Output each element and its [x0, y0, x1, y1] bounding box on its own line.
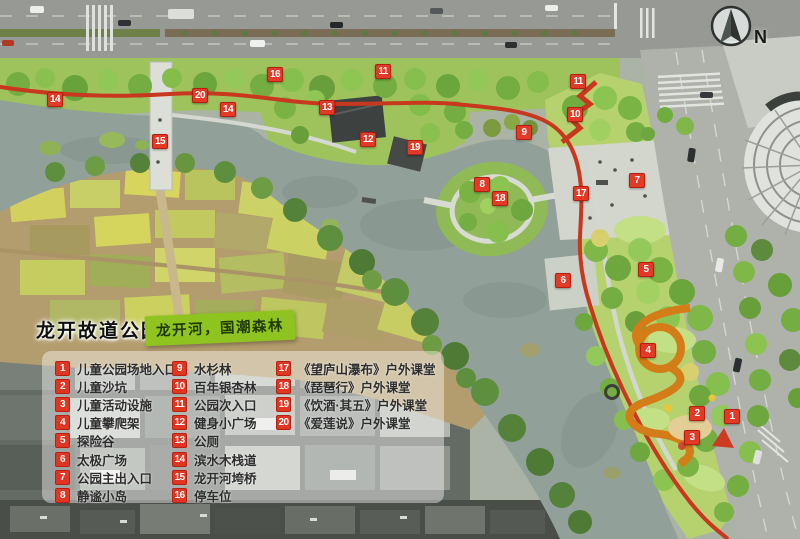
legend-item: 18《琵琶行》户外课堂	[276, 377, 436, 395]
map-marker-4: 4	[640, 343, 656, 358]
map-marker-16: 16	[267, 67, 283, 82]
legend-item: 19《饮酒·其五》户外课堂	[276, 395, 436, 413]
legend-item: 2儿童沙坑	[55, 377, 177, 395]
legend-item-label: 龙开河垮桥	[194, 468, 257, 487]
legend-item-number: 9	[172, 361, 187, 376]
legend-item: 12健身小广场	[172, 414, 257, 432]
map-marker-11: 11	[375, 64, 391, 79]
legend-item: 20《爱莲说》户外课堂	[276, 414, 436, 432]
map-marker-14: 14	[220, 102, 236, 117]
legend-item-number: 18	[276, 379, 291, 394]
legend-item: 8静谧小岛	[55, 486, 177, 504]
legend-item-label: 儿童沙坑	[77, 377, 127, 396]
map-marker-3: 3	[684, 430, 700, 445]
legend-item-label: 健身小广场	[194, 413, 257, 432]
legend-item-label: 公园次入口	[194, 395, 257, 414]
legend-item-label: 探险谷	[77, 431, 115, 450]
park-map-image: 14201415161113121911109818177654213 龙开故道…	[0, 0, 800, 539]
legend-item-label: 儿童攀爬架	[77, 413, 140, 432]
legend-item-number: 1	[55, 361, 70, 376]
map-marker-13: 13	[319, 100, 335, 115]
park-title: 龙开故道公园	[36, 316, 162, 343]
legend-item: 6太极广场	[55, 450, 177, 468]
map-marker-12: 12	[360, 132, 376, 147]
legend-panel: 1儿童公园场地入口2儿童沙坑3儿童活动设施4儿童攀爬架5探险谷6太极广场7公园主…	[42, 351, 444, 503]
legend-item-number: 15	[172, 470, 187, 485]
legend-item-label: 公厕	[194, 431, 219, 450]
legend-item: 15龙开河垮桥	[172, 468, 257, 486]
legend-item: 9水杉林	[172, 359, 257, 377]
legend-item-label: 《琵琶行》户外课堂	[298, 377, 411, 396]
legend-item-number: 6	[55, 452, 70, 467]
legend-item-number: 10	[172, 379, 187, 394]
map-marker-18: 18	[492, 191, 508, 206]
map-marker-6: 6	[555, 273, 571, 288]
map-marker-20: 20	[192, 88, 208, 103]
legend-item: 13公厕	[172, 432, 257, 450]
legend-item: 16停车位	[172, 486, 257, 504]
legend-item-label: 《爱莲说》户外课堂	[298, 413, 411, 432]
map-marker-19: 19	[407, 140, 423, 155]
legend-item-label: 儿童活动设施	[77, 395, 152, 414]
legend-item: 14滨水木栈道	[172, 450, 257, 468]
legend-item-number: 19	[276, 397, 291, 412]
map-marker-5: 5	[638, 262, 654, 277]
legend-column-1: 1儿童公园场地入口2儿童沙坑3儿童活动设施4儿童攀爬架5探险谷6太极广场7公园主…	[55, 359, 177, 505]
legend-item-number: 13	[172, 433, 187, 448]
legend-item: 11公园次入口	[172, 395, 257, 413]
legend-item-number: 8	[55, 488, 70, 503]
legend-item-label: 百年银杏林	[194, 377, 257, 396]
map-marker-11: 11	[570, 74, 586, 89]
legend-item: 4儿童攀爬架	[55, 414, 177, 432]
legend-item-number: 17	[276, 361, 291, 376]
legend-item-number: 14	[172, 452, 187, 467]
compass-north-label: N	[754, 27, 767, 48]
legend-item-label: 《饮酒·其五》户外课堂	[298, 395, 427, 414]
legend-item-number: 7	[55, 470, 70, 485]
legend-item: 7公园主出入口	[55, 468, 177, 486]
legend-item-number: 3	[55, 397, 70, 412]
legend-item-label: 公园主出入口	[77, 468, 152, 487]
legend-column-2: 9水杉林10百年银杏林11公园次入口12健身小广场13公厕14滨水木栈道15龙开…	[172, 359, 257, 505]
map-marker-17: 17	[573, 186, 589, 201]
map-marker-2: 2	[689, 406, 705, 421]
map-marker-15: 15	[152, 134, 168, 149]
legend-item: 3儿童活动设施	[55, 395, 177, 413]
legend-item: 1儿童公园场地入口	[55, 359, 177, 377]
legend-item-label: 停车位	[194, 486, 232, 505]
map-marker-7: 7	[629, 173, 645, 188]
map-marker-9: 9	[516, 125, 532, 140]
legend-item-number: 11	[172, 397, 187, 412]
legend-item-number: 16	[172, 488, 187, 503]
legend-item: 10百年银杏林	[172, 377, 257, 395]
legend-item: 5探险谷	[55, 432, 177, 450]
legend-item-label: 太极广场	[77, 450, 127, 469]
map-marker-1: 1	[724, 409, 740, 424]
legend-item-number: 5	[55, 433, 70, 448]
map-marker-8: 8	[474, 177, 490, 192]
legend-item-label: 水杉林	[194, 359, 232, 378]
legend-column-3: 17《望庐山瀑布》户外课堂18《琵琶行》户外课堂19《饮酒·其五》户外课堂20《…	[276, 359, 436, 432]
legend-item-label: 《望庐山瀑布》户外课堂	[298, 359, 436, 378]
legend-item-number: 20	[276, 415, 291, 430]
legend-item: 17《望庐山瀑布》户外课堂	[276, 359, 436, 377]
map-marker-14: 14	[47, 92, 63, 107]
legend-item-label: 静谧小岛	[77, 486, 127, 505]
legend-item-label: 儿童公园场地入口	[77, 359, 177, 378]
legend-item-label: 滨水木栈道	[194, 450, 257, 469]
legend-item-number: 12	[172, 415, 187, 430]
legend-item-number: 2	[55, 379, 70, 394]
map-marker-10: 10	[567, 107, 583, 122]
legend-item-number: 4	[55, 415, 70, 430]
